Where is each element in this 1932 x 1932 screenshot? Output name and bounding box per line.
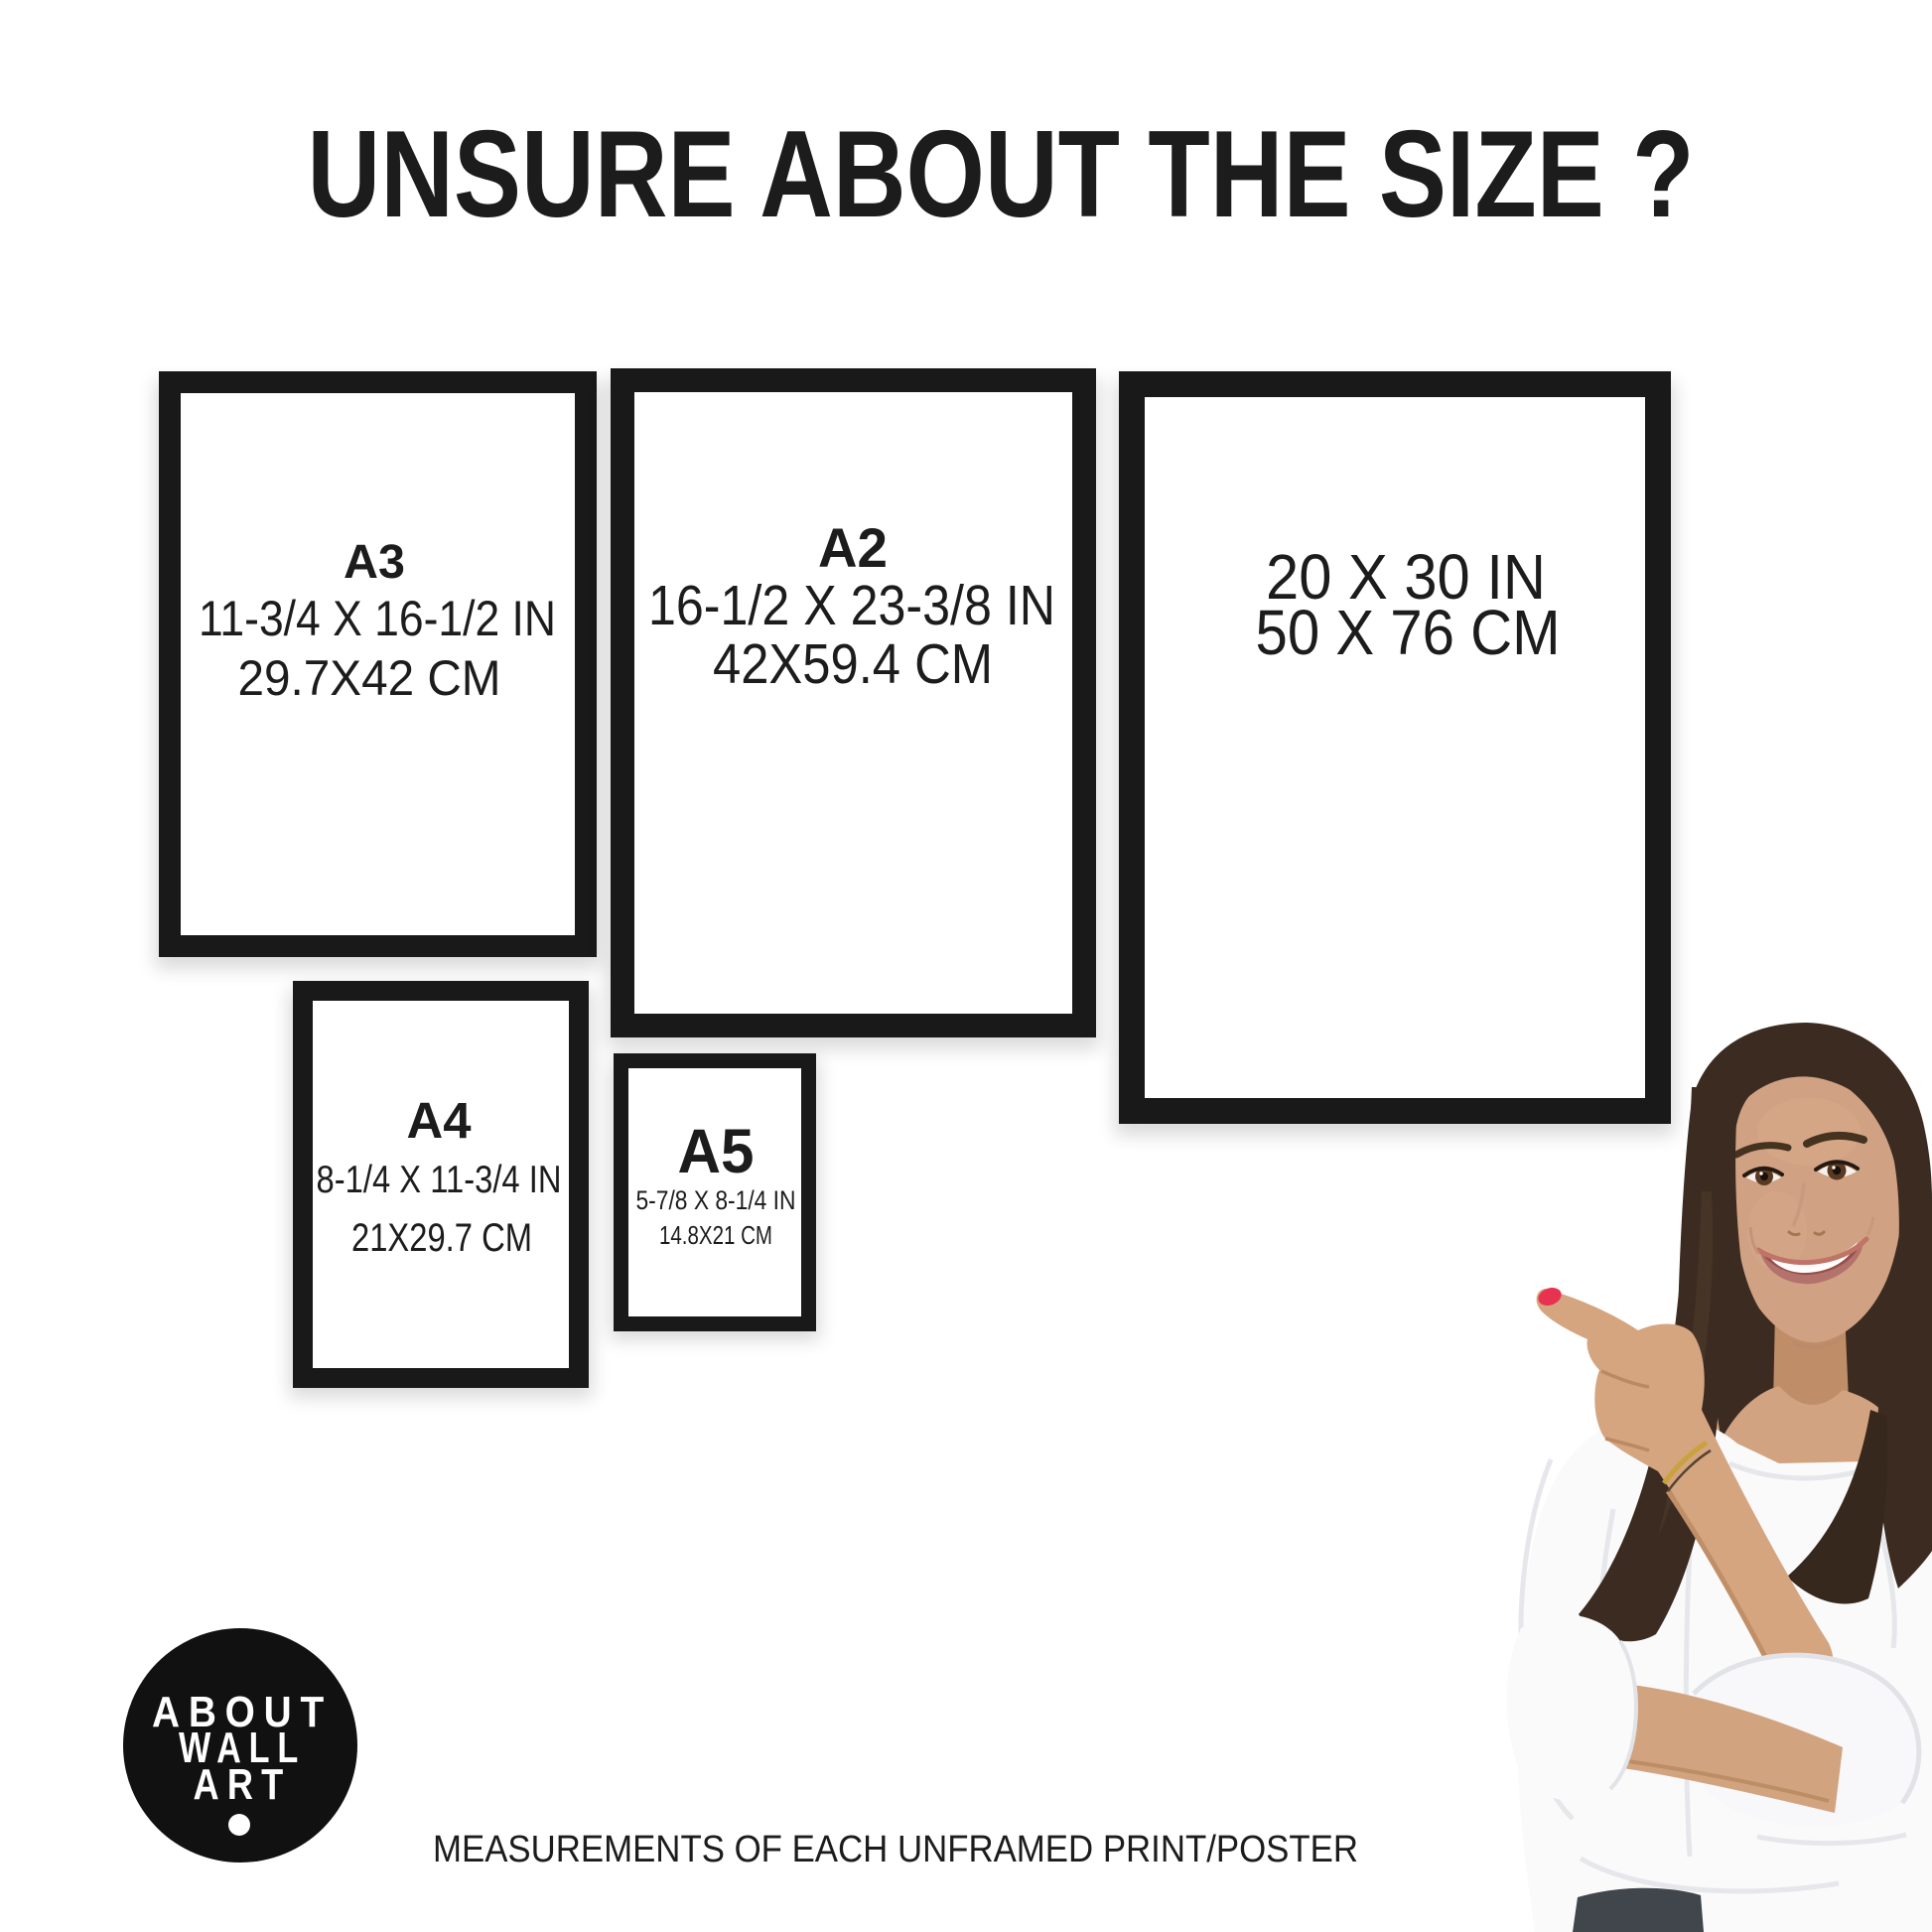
svg-text:A2: A2 bbox=[818, 516, 888, 579]
svg-text:16-1/2 X 23-3/8 IN: 16-1/2 X 23-3/8 IN bbox=[648, 574, 1055, 637]
svg-text:14.8X21 CM: 14.8X21 CM bbox=[659, 1220, 772, 1250]
svg-text:ART: ART bbox=[194, 1760, 292, 1809]
svg-text:11-3/4 X 16-1/2 IN: 11-3/4 X 16-1/2 IN bbox=[199, 591, 556, 646]
svg-text:A3: A3 bbox=[344, 536, 405, 589]
svg-text:50 X 76 CM: 50 X 76 CM bbox=[1256, 597, 1561, 668]
svg-text:21X29.7 CM: 21X29.7 CM bbox=[351, 1216, 532, 1260]
svg-text:A4: A4 bbox=[407, 1092, 473, 1149]
svg-text:42X59.4 CM: 42X59.4 CM bbox=[713, 632, 993, 696]
svg-text:UNSURE ABOUT THE SIZE ?: UNSURE ABOUT THE SIZE ? bbox=[308, 106, 1695, 243]
svg-text:5-7/8 X 8-1/4 IN: 5-7/8 X 8-1/4 IN bbox=[636, 1185, 796, 1215]
svg-text:A5: A5 bbox=[678, 1117, 755, 1186]
svg-text:29.7X42 CM: 29.7X42 CM bbox=[238, 650, 501, 706]
svg-text:MEASUREMENTS OF EACH UNFRAMED: MEASUREMENTS OF EACH UNFRAMED PRINT/POST… bbox=[433, 1829, 1358, 1870]
svg-text:8-1/4 X 11-3/4 IN: 8-1/4 X 11-3/4 IN bbox=[317, 1159, 562, 1201]
